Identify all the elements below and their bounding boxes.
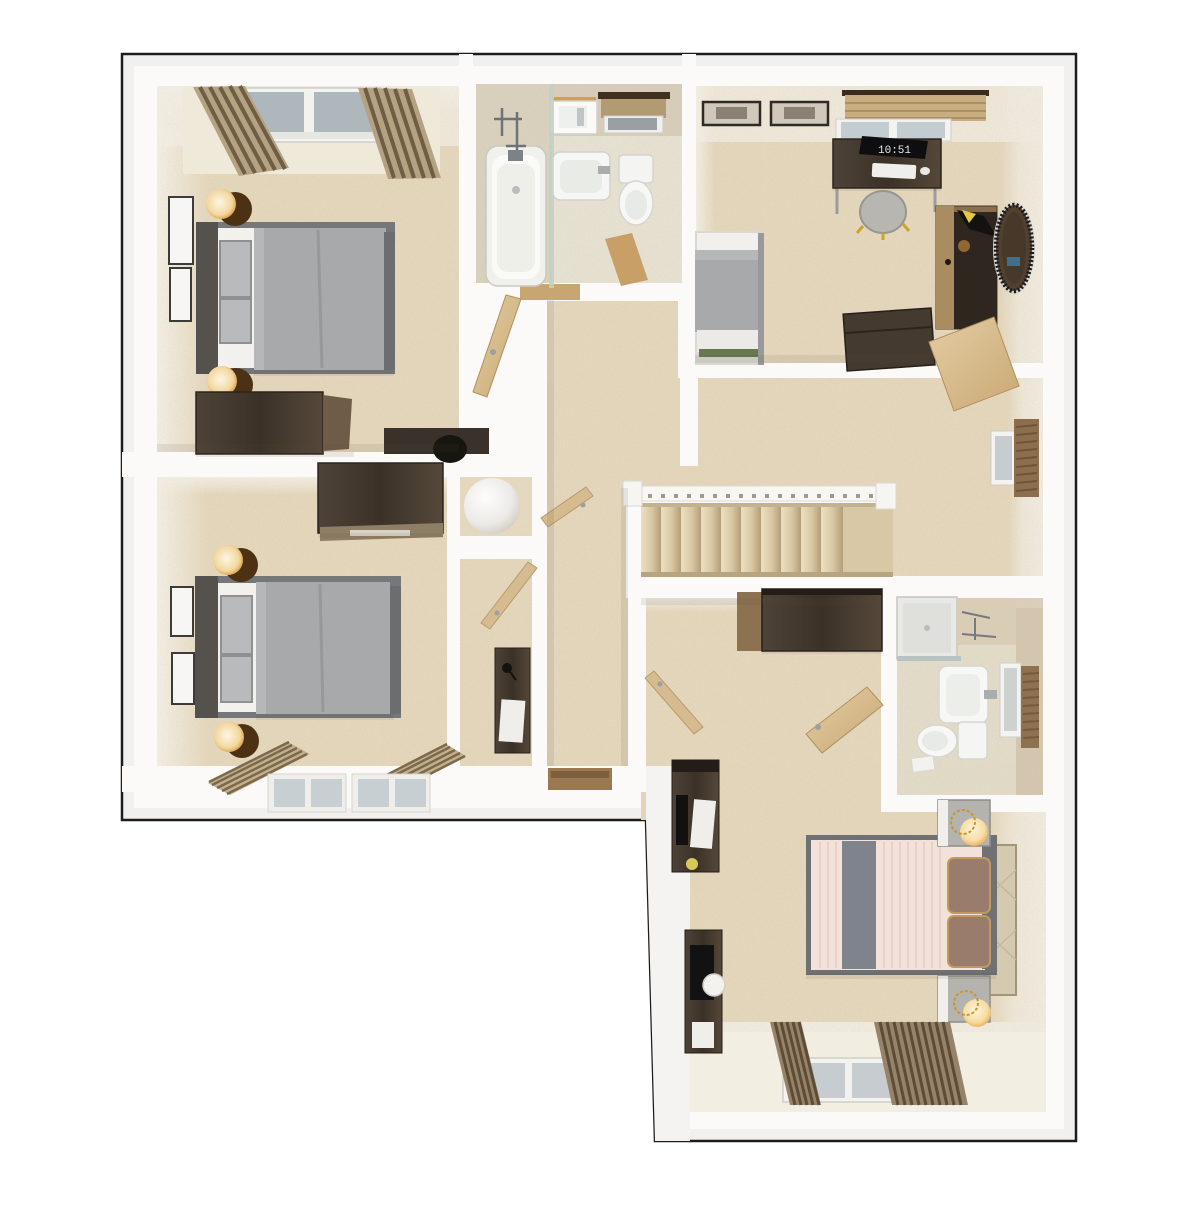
svg-text:10:51: 10:51 — [878, 145, 911, 157]
